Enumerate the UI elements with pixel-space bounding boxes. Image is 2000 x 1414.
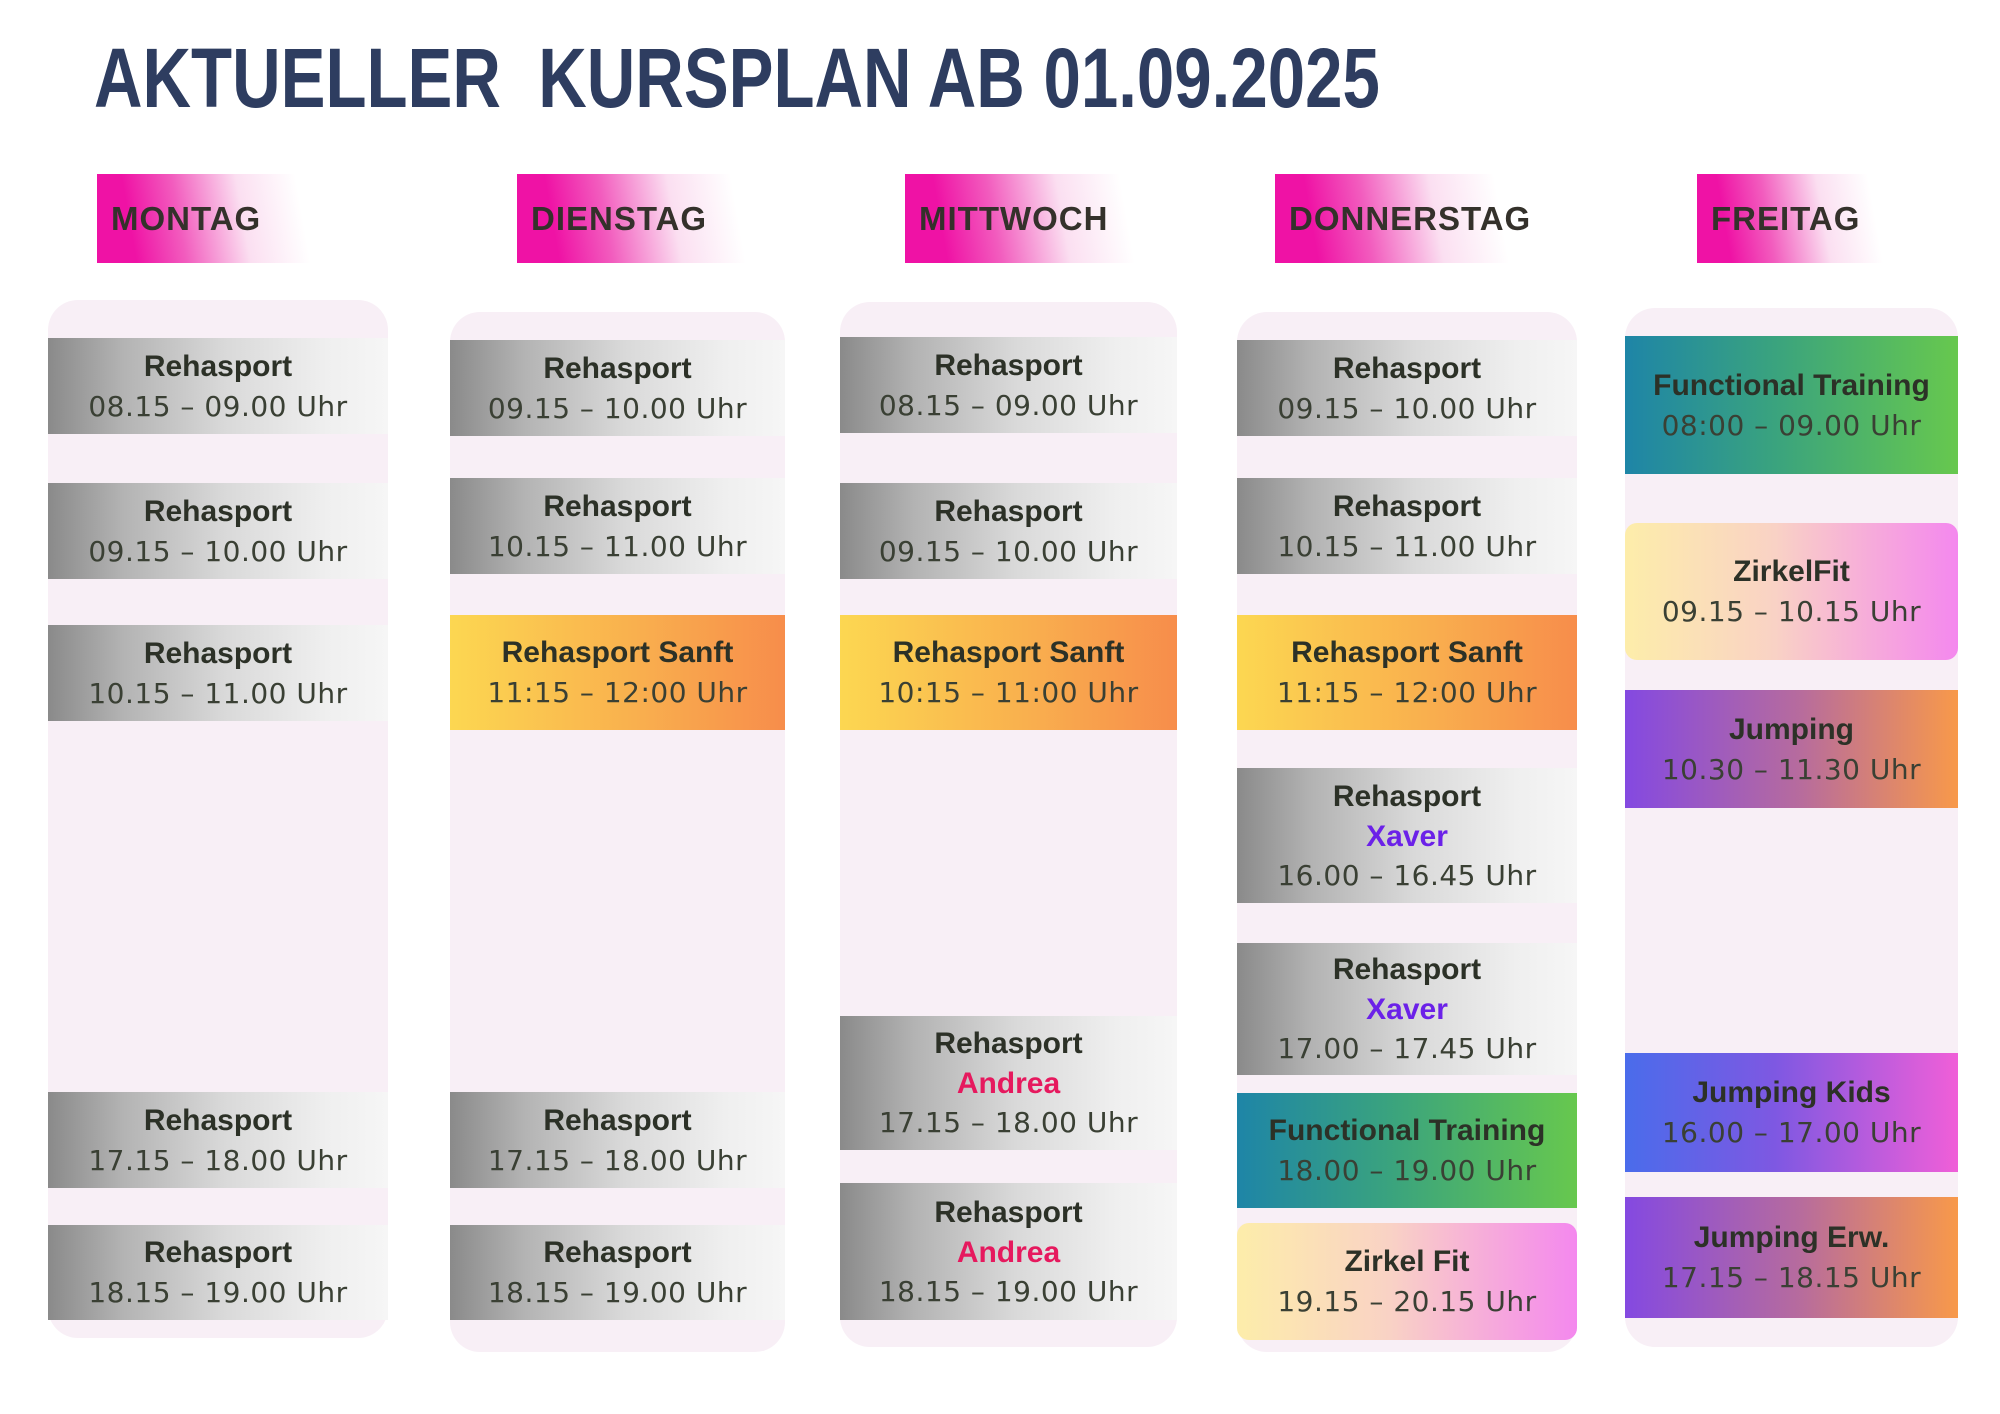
course-card: Rehasport 10.15 – 11.00 Uhr bbox=[48, 625, 388, 721]
course-title: Rehasport bbox=[543, 1235, 691, 1271]
course-title: Rehasport bbox=[144, 636, 292, 672]
course-card: Rehasport 18.15 – 19.00 Uhr bbox=[48, 1225, 388, 1320]
course-time: 18.00 – 19.00 Uhr bbox=[1277, 1154, 1536, 1188]
day-body: Rehasport 08.15 – 09.00 Uhr Rehasport 09… bbox=[48, 300, 388, 1338]
course-card: Rehasport Xaver 17.00 – 17.45 Uhr bbox=[1237, 943, 1577, 1075]
course-card: Rehasport 09.15 – 10.00 Uhr bbox=[840, 483, 1177, 579]
course-card: Jumping 10.30 – 11.30 Uhr bbox=[1625, 690, 1958, 808]
course-time: 11:15 – 12:00 Uhr bbox=[1277, 676, 1537, 710]
course-title: Rehasport bbox=[934, 494, 1082, 530]
course-card: Rehasport Sanft 11:15 – 12:00 Uhr bbox=[450, 615, 785, 730]
course-time: 09.15 – 10.15 Uhr bbox=[1662, 595, 1921, 629]
course-card: Rehasport 09.15 – 10.00 Uhr bbox=[1237, 340, 1577, 436]
course-time: 10.15 – 11.00 Uhr bbox=[88, 677, 347, 711]
day-label: FREITAG bbox=[1697, 200, 1860, 238]
day-body: Rehasport 08.15 – 09.00 Uhr Rehasport 09… bbox=[840, 302, 1177, 1347]
course-card: Functional Training 18.00 – 19.00 Uhr bbox=[1237, 1093, 1577, 1208]
course-time: 19.15 – 20.15 Uhr bbox=[1277, 1285, 1536, 1319]
course-instructor: Xaver bbox=[1366, 993, 1448, 1027]
day-body: Rehasport 09.15 – 10.00 Uhr Rehasport 10… bbox=[450, 312, 785, 1352]
course-title: Rehasport bbox=[934, 348, 1082, 384]
course-title: Rehasport bbox=[1333, 489, 1481, 525]
course-title: ZirkelFit bbox=[1733, 554, 1850, 590]
day-label: MONTAG bbox=[97, 200, 261, 238]
course-title: Rehasport bbox=[543, 351, 691, 387]
course-card: Functional Training 08:00 – 09.00 Uhr bbox=[1625, 336, 1958, 474]
kursplan-poster: AKTUELLER KURSPLAN AB 01.09.2025 MONTAG … bbox=[0, 0, 2000, 1414]
course-card: Jumping Erw. 17.15 – 18.15 Uhr bbox=[1625, 1197, 1958, 1318]
course-time: 10:15 – 11:00 Uhr bbox=[878, 676, 1138, 710]
course-time: 10.15 – 11.00 Uhr bbox=[488, 530, 747, 564]
course-title: Rehasport bbox=[543, 489, 691, 525]
day-header-chip: MITTWOCH bbox=[905, 174, 1157, 263]
day-header-chip: FREITAG bbox=[1697, 174, 1898, 263]
course-time: 10.30 – 11.30 Uhr bbox=[1662, 753, 1921, 787]
course-card: Rehasport 17.15 – 18.00 Uhr bbox=[450, 1092, 785, 1188]
day-label: DIENSTAG bbox=[517, 200, 707, 238]
page-title: AKTUELLER KURSPLAN AB 01.09.2025 bbox=[94, 30, 1701, 127]
course-title: Rehasport bbox=[144, 1103, 292, 1139]
course-title: Jumping bbox=[1729, 712, 1854, 748]
course-time: 08.15 – 09.00 Uhr bbox=[88, 390, 347, 424]
course-time: 09.15 – 10.00 Uhr bbox=[879, 535, 1138, 569]
course-time: 17.15 – 18.00 Uhr bbox=[488, 1144, 747, 1178]
course-card: Rehasport 10.15 – 11.00 Uhr bbox=[1237, 478, 1577, 574]
course-time: 08:00 – 09.00 Uhr bbox=[1662, 409, 1922, 443]
course-instructor: Andrea bbox=[957, 1067, 1060, 1101]
course-instructor: Xaver bbox=[1366, 820, 1448, 854]
course-time: 17.00 – 17.45 Uhr bbox=[1277, 1032, 1536, 1066]
course-time: 17.15 – 18.00 Uhr bbox=[88, 1144, 347, 1178]
day-body: Rehasport 09.15 – 10.00 Uhr Rehasport 10… bbox=[1237, 312, 1577, 1352]
course-card: Rehasport Andrea 18.15 – 19.00 Uhr bbox=[840, 1183, 1177, 1320]
course-time: 17.15 – 18.15 Uhr bbox=[1662, 1261, 1921, 1295]
day-label: DONNERSTAG bbox=[1275, 200, 1531, 238]
course-time: 17.15 – 18.00 Uhr bbox=[879, 1106, 1138, 1140]
course-title: Jumping Erw. bbox=[1694, 1220, 1890, 1256]
course-title: Rehasport bbox=[144, 349, 292, 385]
course-title: Functional Training bbox=[1269, 1113, 1546, 1149]
course-title: Rehasport Sanft bbox=[1291, 635, 1523, 671]
course-card: Rehasport Sanft 10:15 – 11:00 Uhr bbox=[840, 615, 1177, 730]
course-card: Rehasport Sanft 11:15 – 12:00 Uhr bbox=[1237, 615, 1577, 730]
day-body: Functional Training 08:00 – 09.00 Uhr Zi… bbox=[1625, 308, 1958, 1347]
course-card: Rehasport 09.15 – 10.00 Uhr bbox=[450, 340, 785, 436]
course-card: Jumping Kids 16.00 – 17.00 Uhr bbox=[1625, 1053, 1958, 1172]
course-card: Rehasport 10.15 – 11.00 Uhr bbox=[450, 478, 785, 574]
course-card: Rehasport Xaver 16.00 – 16.45 Uhr bbox=[1237, 768, 1577, 903]
course-card: Zirkel Fit 19.15 – 20.15 Uhr bbox=[1237, 1223, 1577, 1340]
course-title: Jumping Kids bbox=[1692, 1075, 1890, 1111]
course-card: Rehasport 09.15 – 10.00 Uhr bbox=[48, 483, 388, 579]
course-time: 18.15 – 19.00 Uhr bbox=[879, 1275, 1138, 1309]
course-time: 18.15 – 19.00 Uhr bbox=[88, 1276, 347, 1310]
page-title-text: AKTUELLER KURSPLAN AB 01.09.2025 bbox=[94, 30, 1380, 127]
course-title: Rehasport Sanft bbox=[502, 635, 734, 671]
course-title: Rehasport bbox=[1333, 952, 1481, 988]
course-title: Rehasport bbox=[1333, 779, 1481, 815]
course-card: Rehasport 18.15 – 19.00 Uhr bbox=[450, 1225, 785, 1320]
course-title: Rehasport Sanft bbox=[893, 635, 1125, 671]
course-time: 11:15 – 12:00 Uhr bbox=[487, 676, 747, 710]
course-card: Rehasport 17.15 – 18.00 Uhr bbox=[48, 1092, 388, 1188]
course-time: 09.15 – 10.00 Uhr bbox=[88, 535, 347, 569]
course-card: Rehasport 08.15 – 09.00 Uhr bbox=[48, 338, 388, 434]
course-title: Rehasport bbox=[934, 1195, 1082, 1231]
course-title: Rehasport bbox=[1333, 351, 1481, 387]
course-title: Rehasport bbox=[144, 1235, 292, 1271]
course-title: Rehasport bbox=[934, 1026, 1082, 1062]
course-title: Rehasport bbox=[144, 494, 292, 530]
course-card: ZirkelFit 09.15 – 10.15 Uhr bbox=[1625, 523, 1958, 660]
course-time: 16.00 – 16.45 Uhr bbox=[1277, 859, 1536, 893]
day-header-chip: DONNERSTAG bbox=[1275, 174, 1532, 263]
day-label: MITTWOCH bbox=[905, 200, 1108, 238]
course-instructor: Andrea bbox=[957, 1236, 1060, 1270]
course-title: Zirkel Fit bbox=[1344, 1244, 1469, 1280]
course-title: Functional Training bbox=[1653, 368, 1930, 404]
course-time: 09.15 – 10.00 Uhr bbox=[488, 392, 747, 426]
course-time: 16.00 – 17.00 Uhr bbox=[1662, 1116, 1921, 1150]
course-title: Rehasport bbox=[543, 1103, 691, 1139]
course-time: 10.15 – 11.00 Uhr bbox=[1277, 530, 1536, 564]
course-time: 18.15 – 19.00 Uhr bbox=[488, 1276, 747, 1310]
course-card: Rehasport Andrea 17.15 – 18.00 Uhr bbox=[840, 1016, 1177, 1150]
day-header-chip: MONTAG bbox=[97, 174, 330, 263]
course-time: 09.15 – 10.00 Uhr bbox=[1277, 392, 1536, 426]
day-header-chip: DIENSTAG bbox=[517, 174, 768, 263]
course-card: Rehasport 08.15 – 09.00 Uhr bbox=[840, 337, 1177, 433]
course-time: 08.15 – 09.00 Uhr bbox=[879, 389, 1138, 423]
